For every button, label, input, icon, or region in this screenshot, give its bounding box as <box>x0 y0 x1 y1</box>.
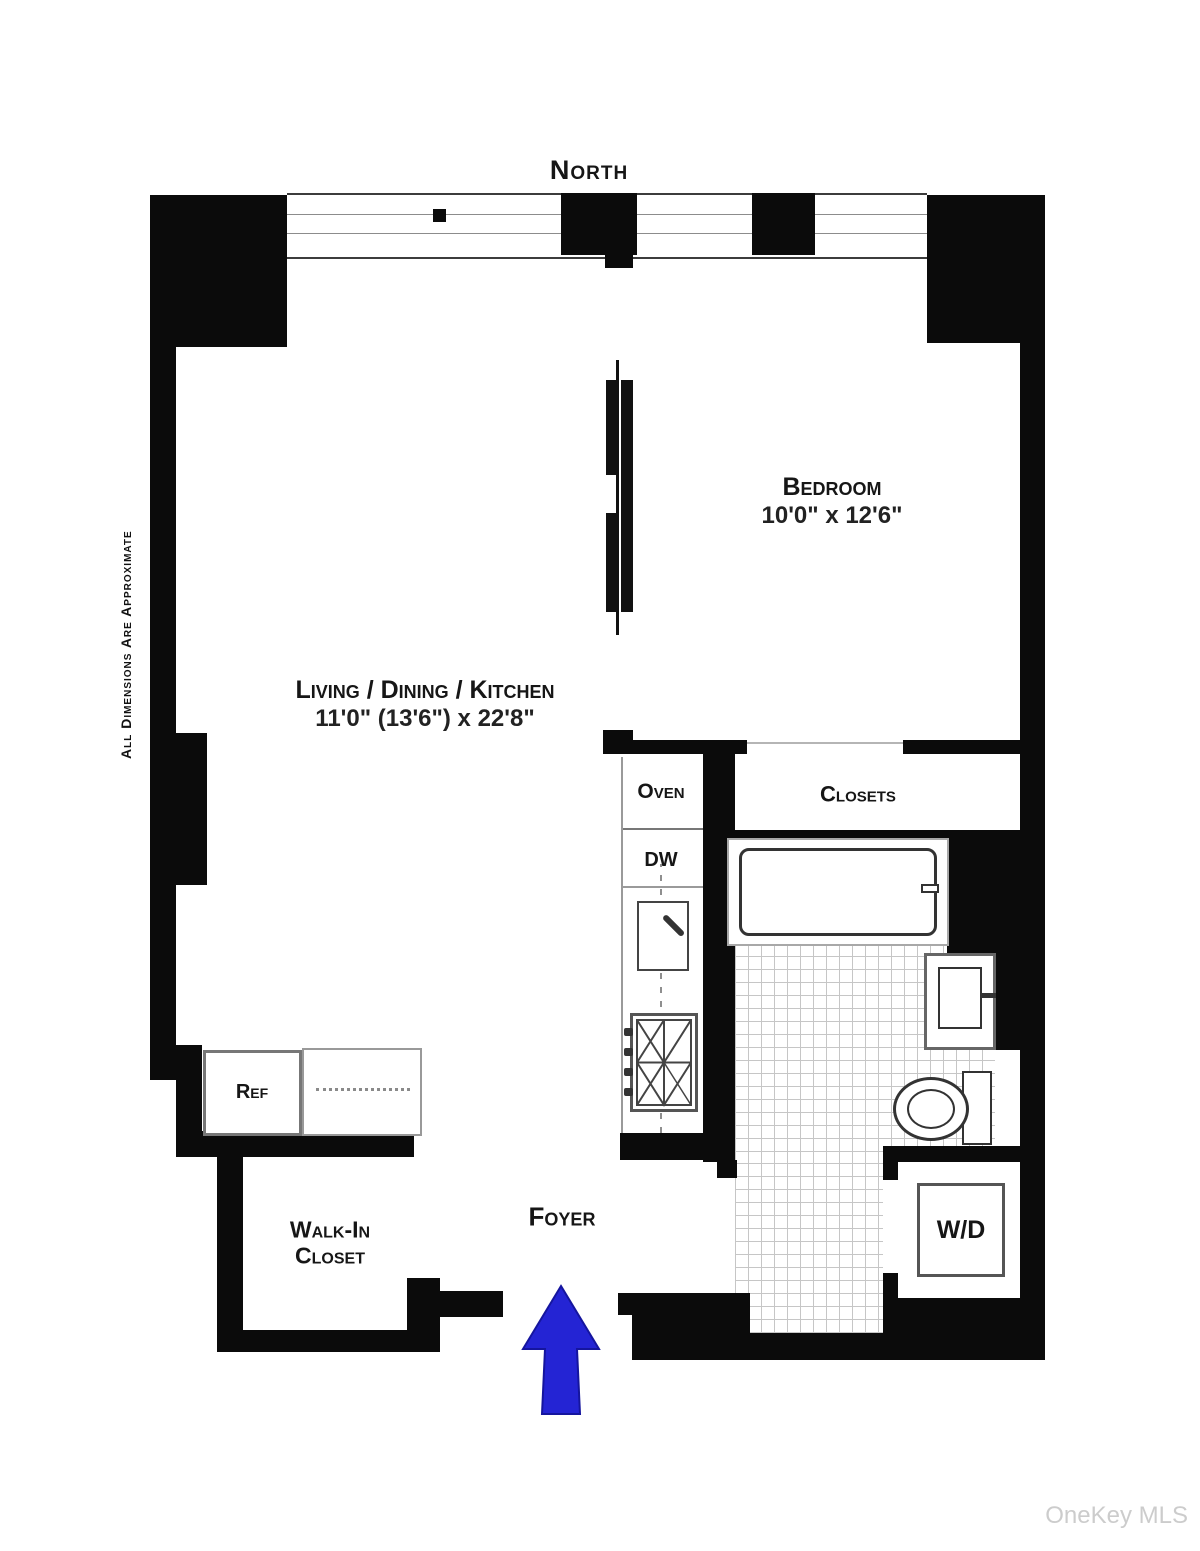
living-dining-kitchen-label: Living / Dining / Kitchen <box>295 676 554 704</box>
kitchen-counter-edge <box>621 757 623 1133</box>
stove-icon <box>630 1013 698 1112</box>
walk-in-closet-label-line2: Closet <box>290 1243 370 1269</box>
north-label: North <box>550 155 628 185</box>
wall-segment <box>1020 195 1045 1360</box>
door-opening-line <box>747 742 903 744</box>
walk-in-closet-label: Walk-In Closet <box>290 1217 370 1269</box>
stove-knob <box>624 1068 633 1076</box>
bedroom-dimensions: 10'0" x 12'6" <box>762 502 903 530</box>
toilet-bowl-inner <box>907 1089 955 1129</box>
walk-in-closet-label-line1: Walk-In <box>290 1217 370 1243</box>
wall-segment <box>150 1045 202 1080</box>
wall-segment <box>903 740 1020 754</box>
foyer-label: Foyer <box>529 1202 596 1231</box>
counter-dotted-line <box>316 1088 410 1091</box>
wall-segment <box>176 733 207 885</box>
wall-segment <box>603 740 747 754</box>
bathroom-sink-basin <box>938 967 982 1029</box>
refrigerator-label: Ref <box>236 1081 268 1103</box>
stove-knob <box>624 1088 633 1096</box>
dimensions-disclaimer: All Dimensions Are Approximate <box>118 430 148 860</box>
wall-segment <box>752 193 815 255</box>
watermark-text: OneKey MLS <box>1045 1502 1188 1530</box>
wall-segment <box>217 1157 243 1352</box>
bathtub-faucet-icon <box>921 884 939 893</box>
wall-segment <box>561 193 637 255</box>
kitchen-cell-divider <box>623 828 703 830</box>
bathtub <box>739 848 937 936</box>
bedroom-label: Bedroom <box>782 473 881 501</box>
kitchen-counter <box>302 1048 422 1136</box>
wall-segment <box>632 1313 750 1360</box>
sliding-door-panel <box>606 513 617 612</box>
floor-plan: North Bedroom 10'0" x 12'6" Living / Din… <box>0 0 1200 1551</box>
sliding-door-panel <box>621 380 633 612</box>
oven-label: Oven <box>637 780 684 804</box>
wall-segment <box>605 252 633 268</box>
wall-segment <box>217 1330 440 1352</box>
wall-segment <box>620 1133 735 1160</box>
living-dining-kitchen-dimensions: 11'0" (13'6") x 22'8" <box>315 705 534 733</box>
wall-segment <box>947 838 1020 955</box>
wall-segment <box>440 1291 503 1317</box>
wall-segment <box>717 1160 737 1178</box>
wall-segment <box>407 1278 440 1330</box>
window-mullion-square <box>433 209 446 222</box>
wall-segment <box>618 1293 750 1315</box>
sliding-door-panel <box>606 380 617 475</box>
wall-segment <box>883 1146 898 1180</box>
closets-label: Closets <box>820 783 896 808</box>
washer-dryer-label: W/D <box>937 1216 986 1244</box>
bathroom-tile-floor-lower <box>735 1152 883 1333</box>
wall-segment <box>703 753 735 1162</box>
stove-knob <box>624 1048 633 1056</box>
stove-knob <box>624 1028 633 1036</box>
wall-segment <box>150 195 176 1080</box>
kitchen-cell-divider <box>623 886 703 888</box>
wall-segment <box>883 1298 1020 1333</box>
wall-segment <box>735 1333 1045 1360</box>
dishwasher-label: DW <box>644 849 677 871</box>
wall-segment <box>883 1146 1020 1162</box>
bathroom-sink-faucet-icon <box>980 993 996 998</box>
entry-arrow-shape <box>523 1286 599 1414</box>
wall-segment <box>993 955 1020 1050</box>
